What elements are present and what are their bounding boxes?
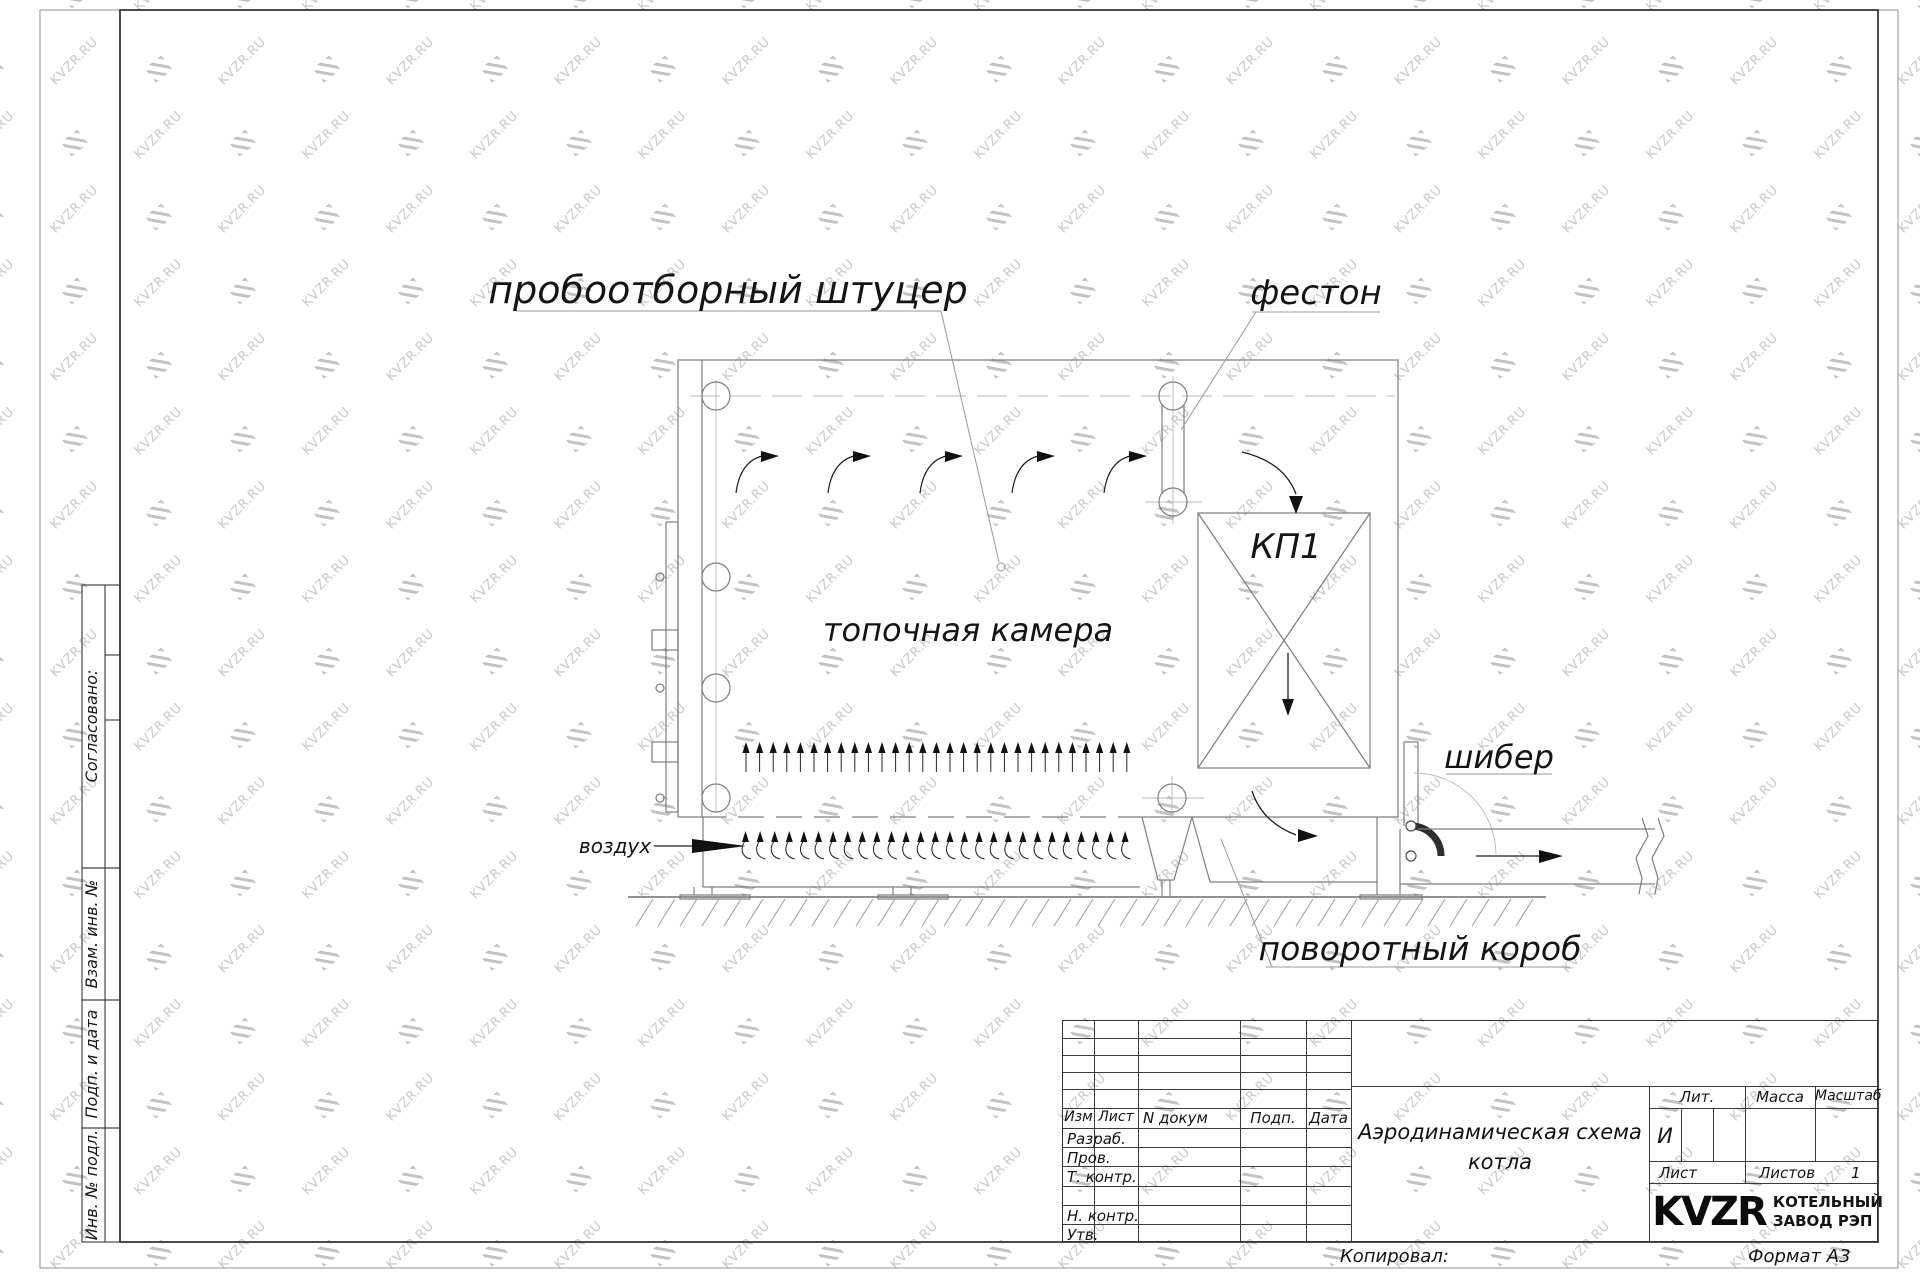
flame-arrow-head	[1123, 742, 1130, 753]
ground-hatch	[636, 899, 1533, 926]
flame-arrows	[742, 742, 1130, 772]
copied-by-label: Копировал:	[1340, 1246, 1449, 1267]
tb-line	[1351, 1086, 1879, 1087]
flame-arrow-head	[933, 742, 940, 753]
air-curl-head	[1049, 831, 1056, 842]
air-curl-head	[1005, 831, 1012, 842]
flue-arrow-head	[761, 451, 779, 462]
air-curl-tail	[1034, 841, 1043, 859]
flame-arrow-head	[960, 742, 967, 753]
hatch-stroke	[1010, 899, 1027, 926]
tb-line	[1063, 1072, 1351, 1073]
margin-label-vzam: Взам. инв. №	[82, 880, 101, 989]
tb-line	[1063, 1205, 1351, 1206]
furnace-label: топочная камера	[823, 611, 1113, 649]
flame-arrow-head	[1042, 742, 1049, 753]
air-curl-tail	[1107, 841, 1116, 859]
damper-swing-arc	[1414, 773, 1496, 855]
air-curl-head	[815, 831, 822, 842]
flame-arrow-head	[1110, 742, 1117, 753]
hatch-stroke	[790, 899, 807, 926]
air-curl-tail	[830, 841, 839, 859]
hatch-stroke	[1208, 899, 1225, 926]
wall-bolt	[656, 684, 664, 692]
flame-arrow-head	[906, 742, 913, 753]
margin-stamps: Согласовано: Взам. инв. № Подп. и дата И…	[82, 585, 120, 1242]
tb-line	[1063, 1089, 1351, 1090]
air-curl-tail	[1092, 841, 1101, 859]
hatch-stroke	[1384, 899, 1401, 926]
tb-line	[1063, 1055, 1351, 1056]
flue-arrow-tail	[1104, 456, 1130, 493]
flame-arrow-head	[783, 742, 790, 753]
tb-row-prov: Пров.	[1067, 1149, 1111, 1167]
air-curl-head	[932, 831, 939, 842]
hatch-stroke	[812, 899, 829, 926]
air-curl-tail	[976, 841, 985, 859]
document-title: Аэродинамическая схема котла	[1351, 1117, 1649, 1177]
kp1-label: КП1	[1250, 527, 1321, 567]
hatch-stroke	[1054, 899, 1071, 926]
flame-arrow-head	[974, 742, 981, 753]
air-curl-tail	[786, 841, 795, 859]
tb-col-podp: Подп.	[1240, 1109, 1306, 1127]
air-curl-head	[1034, 831, 1041, 842]
tb-lit-label: Лит.	[1649, 1088, 1745, 1106]
wall-bracket	[652, 630, 678, 650]
furnace-body	[652, 360, 1398, 817]
air-curl-tail	[903, 841, 912, 859]
hatch-stroke	[1472, 899, 1489, 926]
hatch-stroke	[702, 899, 719, 926]
hatch-stroke	[1406, 899, 1423, 926]
sampling-label: пробоотборный штуцер	[488, 268, 967, 312]
kp1-flow-arrows	[1242, 452, 1303, 716]
hatch-stroke	[1076, 899, 1093, 926]
air-curl-tail	[873, 841, 882, 859]
tb-col-doc: N докум	[1143, 1109, 1208, 1127]
tb-line	[1063, 1038, 1351, 1039]
tb-scale-label: Масштаб	[1815, 1088, 1879, 1104]
air-curl-tail	[742, 841, 751, 859]
air-curl-tail	[1063, 841, 1072, 859]
left-wall-plate	[666, 522, 678, 812]
air-curl-head	[990, 831, 997, 842]
damper-label: шибер	[1444, 738, 1554, 776]
hatch-stroke	[1274, 899, 1291, 926]
hatch-stroke	[636, 899, 653, 926]
air-curl-head	[742, 831, 749, 842]
air-curl-head	[844, 831, 851, 842]
margin-label-podp-data: Подп. и дата	[82, 1010, 101, 1119]
brand-subtitle-line2: ЗАВОД РЭП	[1773, 1212, 1883, 1231]
air-curl-head	[1122, 831, 1129, 842]
tb-col-izm: Изм	[1063, 1109, 1094, 1125]
tb-line	[1649, 1108, 1879, 1109]
air-curl-head	[1019, 831, 1026, 842]
flame-arrow-head	[770, 742, 777, 753]
hatch-stroke	[768, 899, 785, 926]
wall-bolt	[656, 794, 664, 802]
flame-arrow-head	[1082, 742, 1089, 753]
flame-arrow-head	[987, 742, 994, 753]
air-curl-head	[771, 831, 778, 842]
air-curl-tail	[1019, 841, 1028, 859]
tb-row-utv: Утв.	[1067, 1226, 1099, 1244]
air-curl-head	[1063, 831, 1070, 842]
air-curl-head	[903, 831, 910, 842]
air-curl-tail	[815, 841, 824, 859]
damper-blade	[1411, 826, 1441, 856]
hatch-stroke	[1516, 899, 1533, 926]
brand-subtitle: КОТЕЛЬНЫЙ ЗАВОД РЭП	[1773, 1193, 1883, 1231]
tb-line	[1681, 1108, 1682, 1161]
hatch-stroke	[746, 899, 763, 926]
format-label: Формат А3	[1748, 1246, 1851, 1267]
hatch-stroke	[856, 899, 873, 926]
air-curl-head	[1092, 831, 1099, 842]
hatch-stroke	[1428, 899, 1445, 926]
flue-arrow-tail	[828, 456, 854, 493]
tb-lit-value: И	[1649, 1124, 1681, 1148]
air-curl-head	[830, 831, 837, 842]
hatch-stroke	[1186, 899, 1203, 926]
flame-arrow-head	[742, 742, 749, 753]
tb-col-list: Лист	[1094, 1109, 1138, 1125]
air-curl-tail	[1078, 841, 1087, 859]
tb-row-tkontr: Т. контр.	[1067, 1168, 1137, 1186]
hatch-stroke	[1164, 899, 1181, 926]
flame-arrow-head	[946, 742, 953, 753]
air-curl-tail	[771, 841, 780, 859]
air-curl-head	[800, 831, 807, 842]
tb-line	[1063, 1186, 1351, 1187]
hatch-stroke	[834, 899, 851, 926]
flue-arrow-tail	[1012, 456, 1038, 493]
turning-box-label: поворотный короб	[1259, 929, 1582, 968]
title-block: Изм Лист N докум Подп. Дата Разраб. Пров…	[1062, 1020, 1878, 1242]
hatch-stroke	[1494, 899, 1511, 926]
air-curl-tail	[1005, 841, 1014, 859]
air-curl-head	[873, 831, 880, 842]
flue-arrow-tail	[736, 456, 762, 493]
flame-arrow-head	[797, 742, 804, 753]
air-curl-tail	[844, 841, 853, 859]
flue-arrow-head	[1037, 451, 1055, 462]
air-curl-tail	[1049, 841, 1058, 859]
flame-arrow-head	[1069, 742, 1076, 753]
tb-line	[1713, 1108, 1714, 1161]
brand-wordmark: KVZR	[1652, 1192, 1766, 1232]
air-curl-tail	[932, 841, 941, 859]
hatch-stroke	[900, 899, 917, 926]
drawing-sheet: KVZR.RUKVZR.RUKVZR.RUKVZR.RUKVZR.RUKVZR.…	[0, 0, 1920, 1280]
flame-arrow-head	[1096, 742, 1103, 753]
hatch-stroke	[1362, 899, 1379, 926]
air-curl-head	[859, 831, 866, 842]
air-inlet-arrow	[654, 839, 746, 853]
flue-gas-arrows	[736, 451, 1147, 493]
flame-arrow-head	[1001, 742, 1008, 753]
air-flow-arrows	[742, 831, 1131, 859]
air-curl-tail	[961, 841, 970, 859]
tb-line	[1063, 1128, 1351, 1129]
air-curl-tail	[990, 841, 999, 859]
hatch-stroke	[1230, 899, 1247, 926]
air-curl-tail	[859, 841, 868, 859]
damper-hinge	[1406, 821, 1416, 831]
tb-row-razrab: Разраб.	[1067, 1130, 1126, 1148]
document-title-line1: Аэродинамическая схема	[1351, 1117, 1649, 1147]
hatch-stroke	[988, 899, 1005, 926]
festoon-label: фестон	[1250, 273, 1382, 313]
air-curl-head	[888, 831, 895, 842]
outlet-arrow	[1476, 850, 1563, 863]
hatch-stroke	[1120, 899, 1137, 926]
flame-arrow-head	[919, 742, 926, 753]
tb-mass-label: Масса	[1745, 1088, 1815, 1106]
flame-arrow-head	[865, 742, 872, 753]
wall-bolt	[656, 573, 664, 581]
flue-arrow-head	[1129, 451, 1147, 462]
air-curl-tail	[757, 841, 766, 859]
flame-arrow-head	[1028, 742, 1035, 753]
hatch-stroke	[944, 899, 961, 926]
tb-sheets-value: 1	[1851, 1164, 1861, 1182]
air-curl-head	[1078, 831, 1085, 842]
hatch-stroke	[922, 899, 939, 926]
flame-arrow-head	[838, 742, 845, 753]
air-curl-tail	[917, 841, 926, 859]
flue-arrow-head	[853, 451, 871, 462]
sampling-point	[997, 563, 1005, 571]
tb-sheet-label: Лист	[1659, 1164, 1697, 1182]
hatch-stroke	[1098, 899, 1115, 926]
tb-row-nkontr: Н. контр.	[1067, 1207, 1139, 1225]
air-curl-head	[1107, 831, 1114, 842]
flame-arrow-head	[1055, 742, 1062, 753]
flame-arrow-head	[851, 742, 858, 753]
flue-arrow-head	[945, 451, 963, 462]
hatch-stroke	[1296, 899, 1313, 926]
tb-col-data: Дата	[1306, 1109, 1351, 1127]
damper-hinge	[1406, 851, 1416, 861]
air-curl-head	[976, 831, 983, 842]
hatch-stroke	[680, 899, 697, 926]
air-curl-head	[917, 831, 924, 842]
hatch-stroke	[1142, 899, 1159, 926]
hatch-stroke	[1340, 899, 1357, 926]
air-label: воздух	[579, 834, 651, 858]
brand-subtitle-line1: КОТЕЛЬНЫЙ	[1773, 1193, 1883, 1212]
air-curl-head	[786, 831, 793, 842]
flame-arrow-head	[878, 742, 885, 753]
flame-arrow-head	[824, 742, 831, 753]
organization-cell: KVZR КОТЕЛЬНЫЙ ЗАВОД РЭП	[1649, 1183, 1879, 1241]
hatch-stroke	[658, 899, 675, 926]
document-title-line2: котла	[1351, 1147, 1649, 1177]
hatch-stroke	[724, 899, 741, 926]
hatch-stroke	[878, 899, 895, 926]
hatch-stroke	[1032, 899, 1049, 926]
air-curl-tail	[1122, 841, 1131, 859]
air-curl-tail	[888, 841, 897, 859]
margin-label-agreed: Согласовано:	[82, 670, 101, 783]
flue-arrow-tail	[920, 456, 946, 493]
wall-bracket	[652, 742, 678, 762]
air-curl-head	[946, 831, 953, 842]
hatch-stroke	[1318, 899, 1335, 926]
tb-sheets-label: Листов	[1759, 1164, 1815, 1182]
flame-arrow-head	[892, 742, 899, 753]
margin-label-inv-podl: Инв. № подл.	[82, 1130, 101, 1240]
air-curl-head	[961, 831, 968, 842]
flame-arrow-head	[1014, 742, 1021, 753]
air-curl-head	[757, 831, 764, 842]
flame-arrow-head	[810, 742, 817, 753]
air-curl-tail	[800, 841, 809, 859]
flame-arrow-head	[756, 742, 763, 753]
hatch-stroke	[1450, 899, 1467, 926]
tb-line	[1649, 1161, 1879, 1162]
hatch-stroke	[966, 899, 983, 926]
air-curl-tail	[946, 841, 955, 859]
